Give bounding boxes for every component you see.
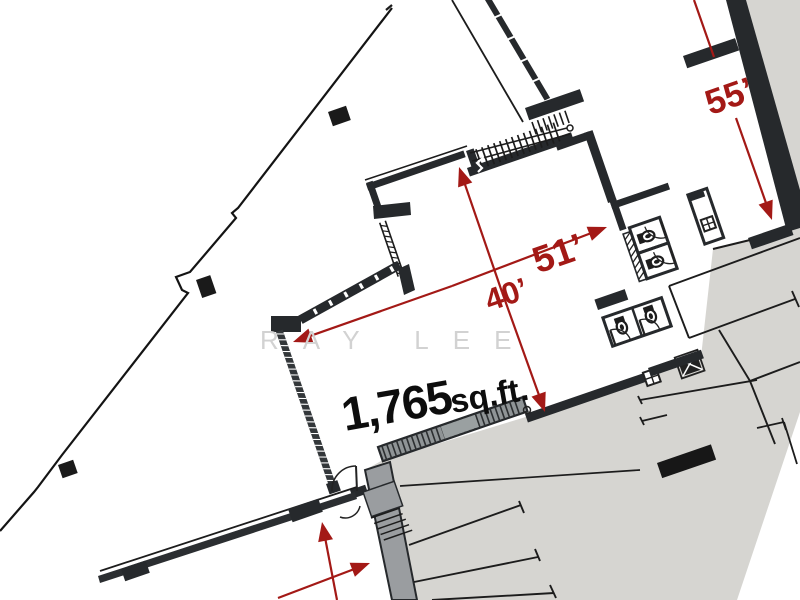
svg-text:RAY LEE: RAY LEE	[260, 325, 535, 355]
